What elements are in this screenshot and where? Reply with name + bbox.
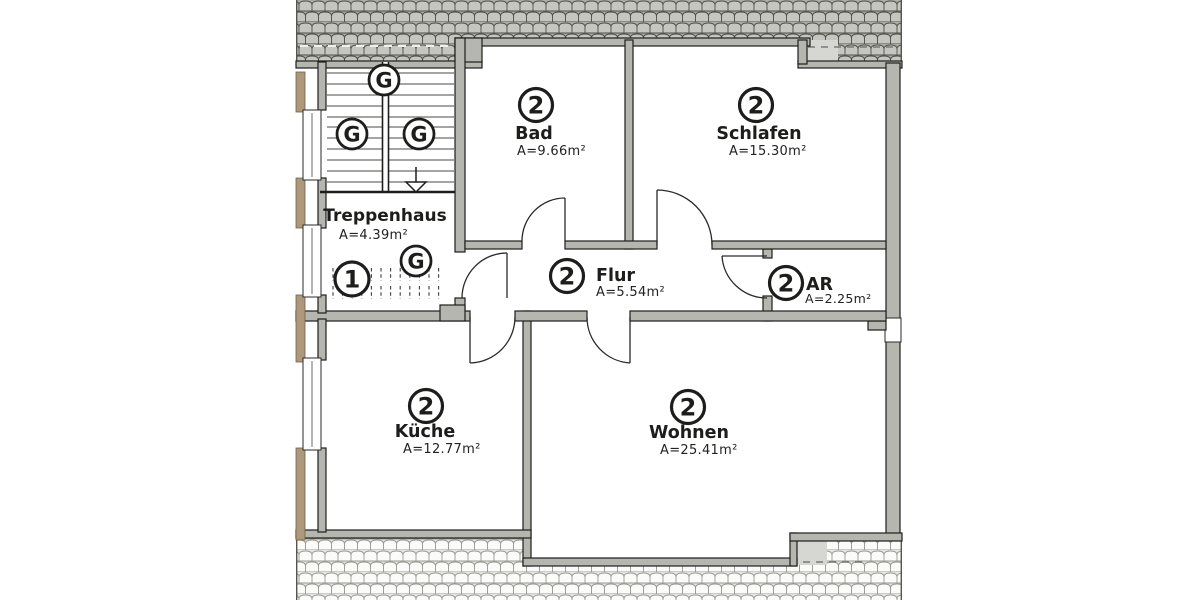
wall-wohnen-bottom-left: [523, 558, 797, 566]
bad-name: Bad: [515, 124, 553, 144]
bad-unit-number: 2: [528, 92, 545, 120]
marker-one-treppenhaus: 1: [335, 262, 369, 296]
roof-tiles-bottom-mid: [523, 566, 802, 600]
marker-one-treppenhaus-label: 1: [344, 266, 361, 294]
wall-flur-top-c: [712, 241, 886, 249]
marker-g-stair-top-label: G: [375, 69, 392, 93]
bad-area: A=9.66m²: [517, 144, 586, 159]
floor-plan-svg: G G G G 1 2 Bad A=9.66m² 2 Schlafe: [0, 0, 1200, 600]
staircase: [320, 62, 455, 299]
wall-left-seg-5: [318, 448, 326, 532]
wall-left-seg-4: [318, 319, 326, 360]
roof-tiles-top: [296, 0, 902, 63]
door-bad: [522, 198, 565, 241]
wall-kueche-wohnen: [523, 311, 531, 566]
kueche-unit-number: 2: [418, 393, 435, 421]
schlafen-area: A=15.30m²: [729, 144, 807, 159]
room-label-treppenhaus: Treppenhaus A=4.39m²: [323, 206, 446, 243]
wall-flur-bottom-b: [515, 311, 587, 321]
marker-g-stair-top: G: [369, 65, 399, 95]
wall-right-gap: [885, 318, 901, 342]
wall-kueche-bottom: [296, 530, 531, 538]
schlafen-unit-number: 2: [748, 92, 765, 120]
door-treppenhaus-flur: [462, 253, 507, 298]
door-ar: [722, 256, 767, 298]
door-wohnen: [587, 317, 630, 363]
roof-tiles-top-main: [296, 0, 902, 40]
ar-unit-number: 2: [778, 270, 795, 298]
kueche-name: Küche: [395, 422, 456, 442]
tan-strip-2: [296, 178, 305, 228]
wall-wohnen-bottom-right: [790, 533, 902, 541]
tan-strip-1: [296, 72, 305, 112]
room-label-bad: 2 Bad A=9.66m²: [515, 89, 586, 160]
door-kueche: [470, 317, 515, 363]
left-wall-windows: [296, 62, 326, 540]
tan-strip-3: [296, 295, 305, 362]
wall-bad-schlafen: [625, 40, 633, 249]
room-label-ar: 2 AR A=2.25m²: [770, 267, 872, 307]
marker-g-treppenhaus-label: G: [407, 250, 424, 274]
wall-flur-top-b: [565, 241, 657, 249]
wall-right-stub: [868, 321, 886, 330]
roof-tiles-top-left: [296, 40, 462, 62]
roof-tiles-bottom-left: [296, 538, 531, 600]
wall-flur-bottom-c: [630, 311, 886, 321]
marker-g-stair-right: G: [404, 119, 434, 149]
marker-g-treppenhaus: G: [401, 246, 431, 276]
schlafen-name: Schlafen: [716, 124, 801, 144]
marker-g-stair-right-label: G: [410, 123, 427, 147]
room-label-schlafen: 2 Schlafen A=15.30m²: [716, 89, 806, 160]
room-label-flur: 2 Flur A=5.54m²: [551, 260, 666, 301]
flur-area: A=5.54m²: [596, 285, 665, 300]
wall-left-seg-3: [318, 295, 326, 313]
wall-stair-bad-upper: [455, 38, 465, 252]
wall-step-right: [798, 40, 807, 64]
kueche-area: A=12.77m²: [403, 442, 481, 457]
floor-plan: G G G G 1 2 Bad A=9.66m² 2 Schlafe: [0, 0, 1200, 600]
wohnen-area: A=25.41m²: [660, 443, 738, 458]
treppenhaus-area: A=4.39m²: [339, 228, 408, 243]
flur-name: Flur: [596, 266, 635, 286]
room-label-wohnen: 2 Wohnen A=25.41m²: [649, 391, 738, 459]
wohnen-unit-number: 2: [680, 394, 697, 422]
wall-flur-top-a: [465, 241, 522, 249]
door-schlafen: [657, 190, 712, 245]
treppenhaus-name: Treppenhaus: [323, 206, 446, 226]
ar-area: A=2.25m²: [805, 291, 871, 306]
stair-arrow-down: [406, 182, 426, 192]
wohnen-name: Wohnen: [649, 423, 729, 443]
marker-g-stair-left: G: [337, 119, 367, 149]
tan-strip-4: [296, 448, 305, 540]
wall-left-seg-1: [318, 62, 326, 110]
roof-tiles-bottom: [296, 538, 902, 600]
marker-g-stair-left-label: G: [343, 123, 360, 147]
wall-flur-corner-stub: [440, 305, 465, 321]
wall-right-exterior: [886, 63, 900, 540]
room-label-kueche: 2 Küche A=12.77m²: [395, 390, 481, 458]
flur-unit-number: 2: [559, 263, 576, 291]
